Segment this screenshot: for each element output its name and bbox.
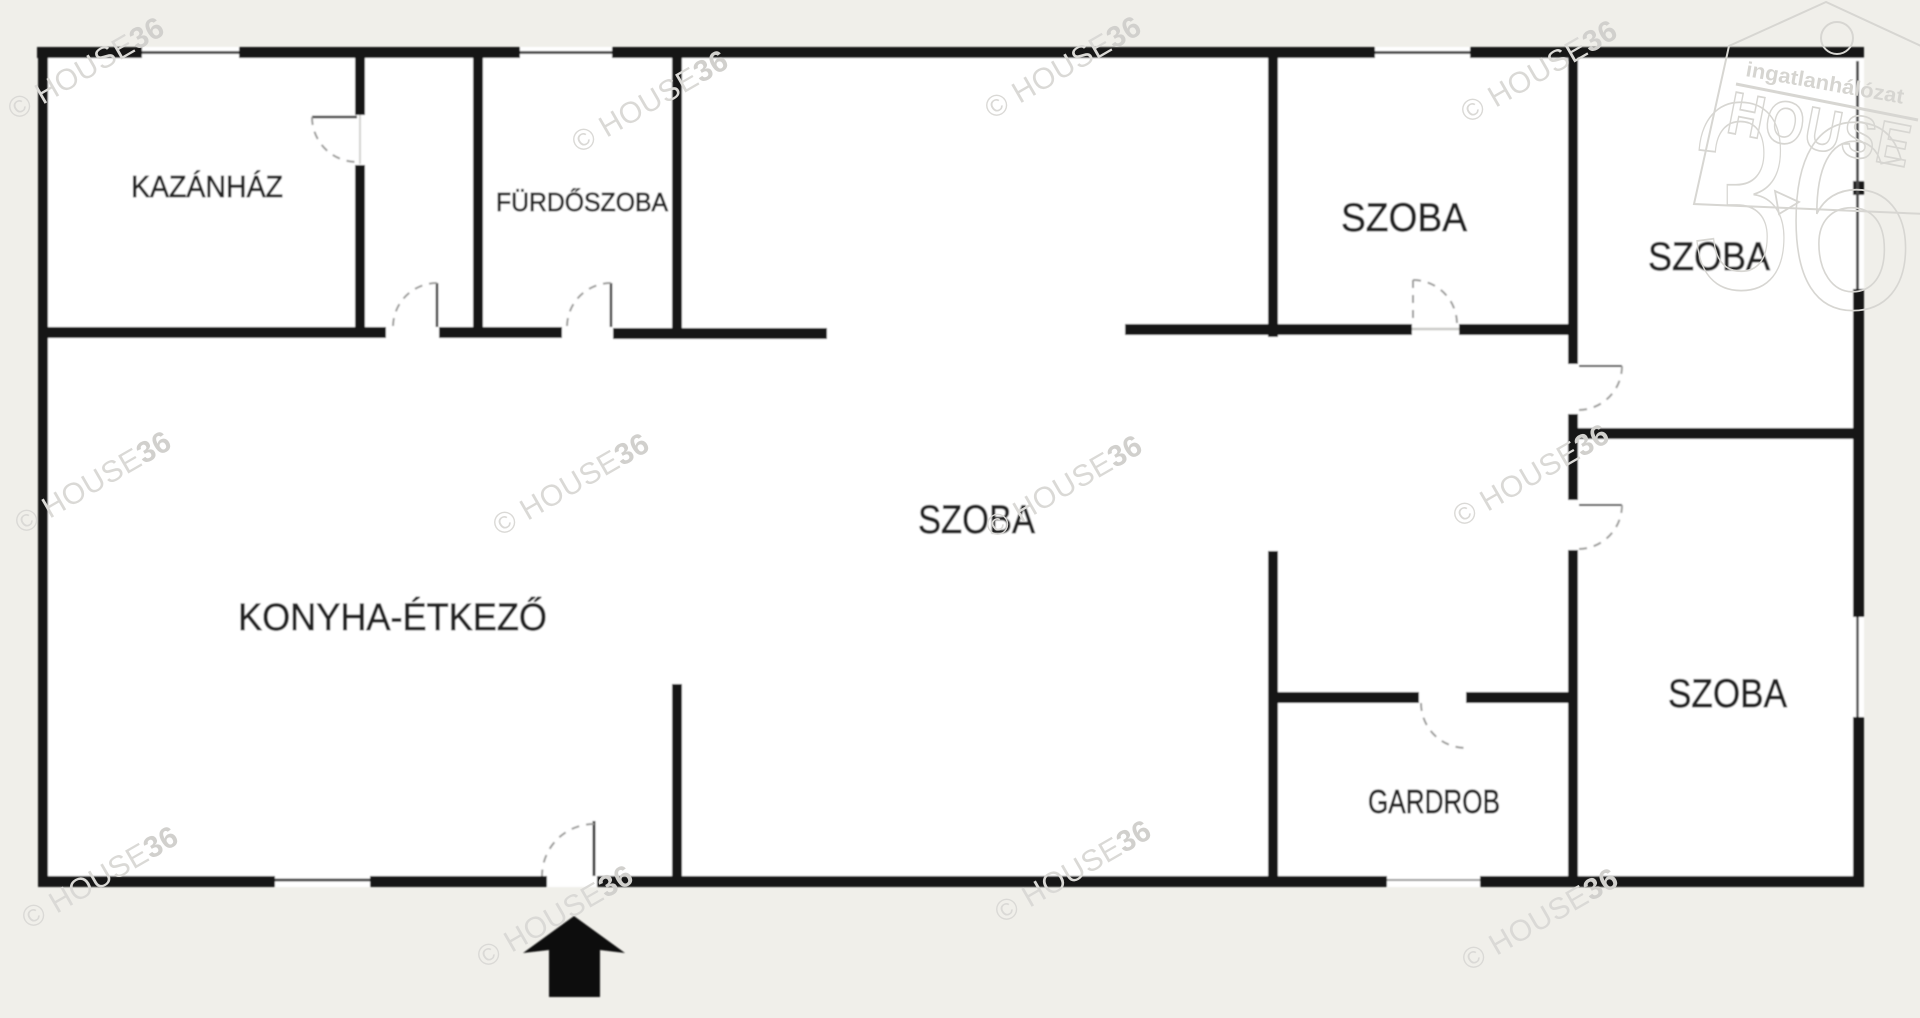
svg-text:SZOBA: SZOBA (1341, 196, 1467, 240)
svg-text:KAZÁNHÁZ: KAZÁNHÁZ (131, 169, 283, 204)
svg-text:KONYHA-ÉTKEZŐ: KONYHA-ÉTKEZŐ (238, 596, 547, 639)
svg-text:GARDROB: GARDROB (1368, 783, 1500, 820)
svg-text:FÜRDŐSZOBA: FÜRDŐSZOBA (496, 187, 669, 217)
svg-text:SZOBA: SZOBA (1668, 672, 1787, 716)
svg-text:6: 6 (1784, 68, 1916, 365)
